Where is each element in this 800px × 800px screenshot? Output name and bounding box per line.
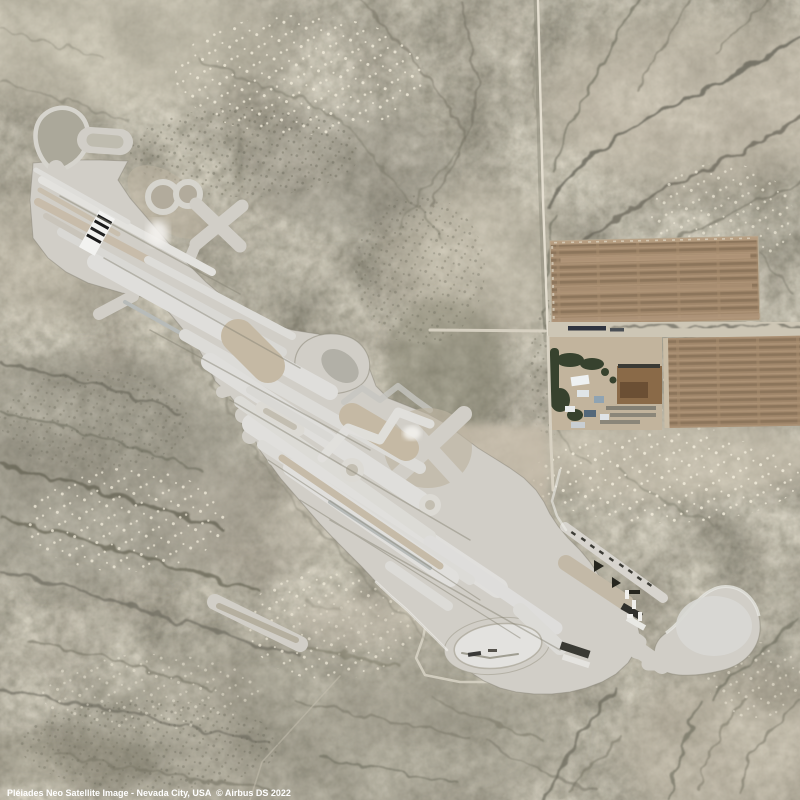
svg-text:Pléiades Neo Satellite Image -: Pléiades Neo Satellite Image - Nevada Ci… [7,788,291,798]
